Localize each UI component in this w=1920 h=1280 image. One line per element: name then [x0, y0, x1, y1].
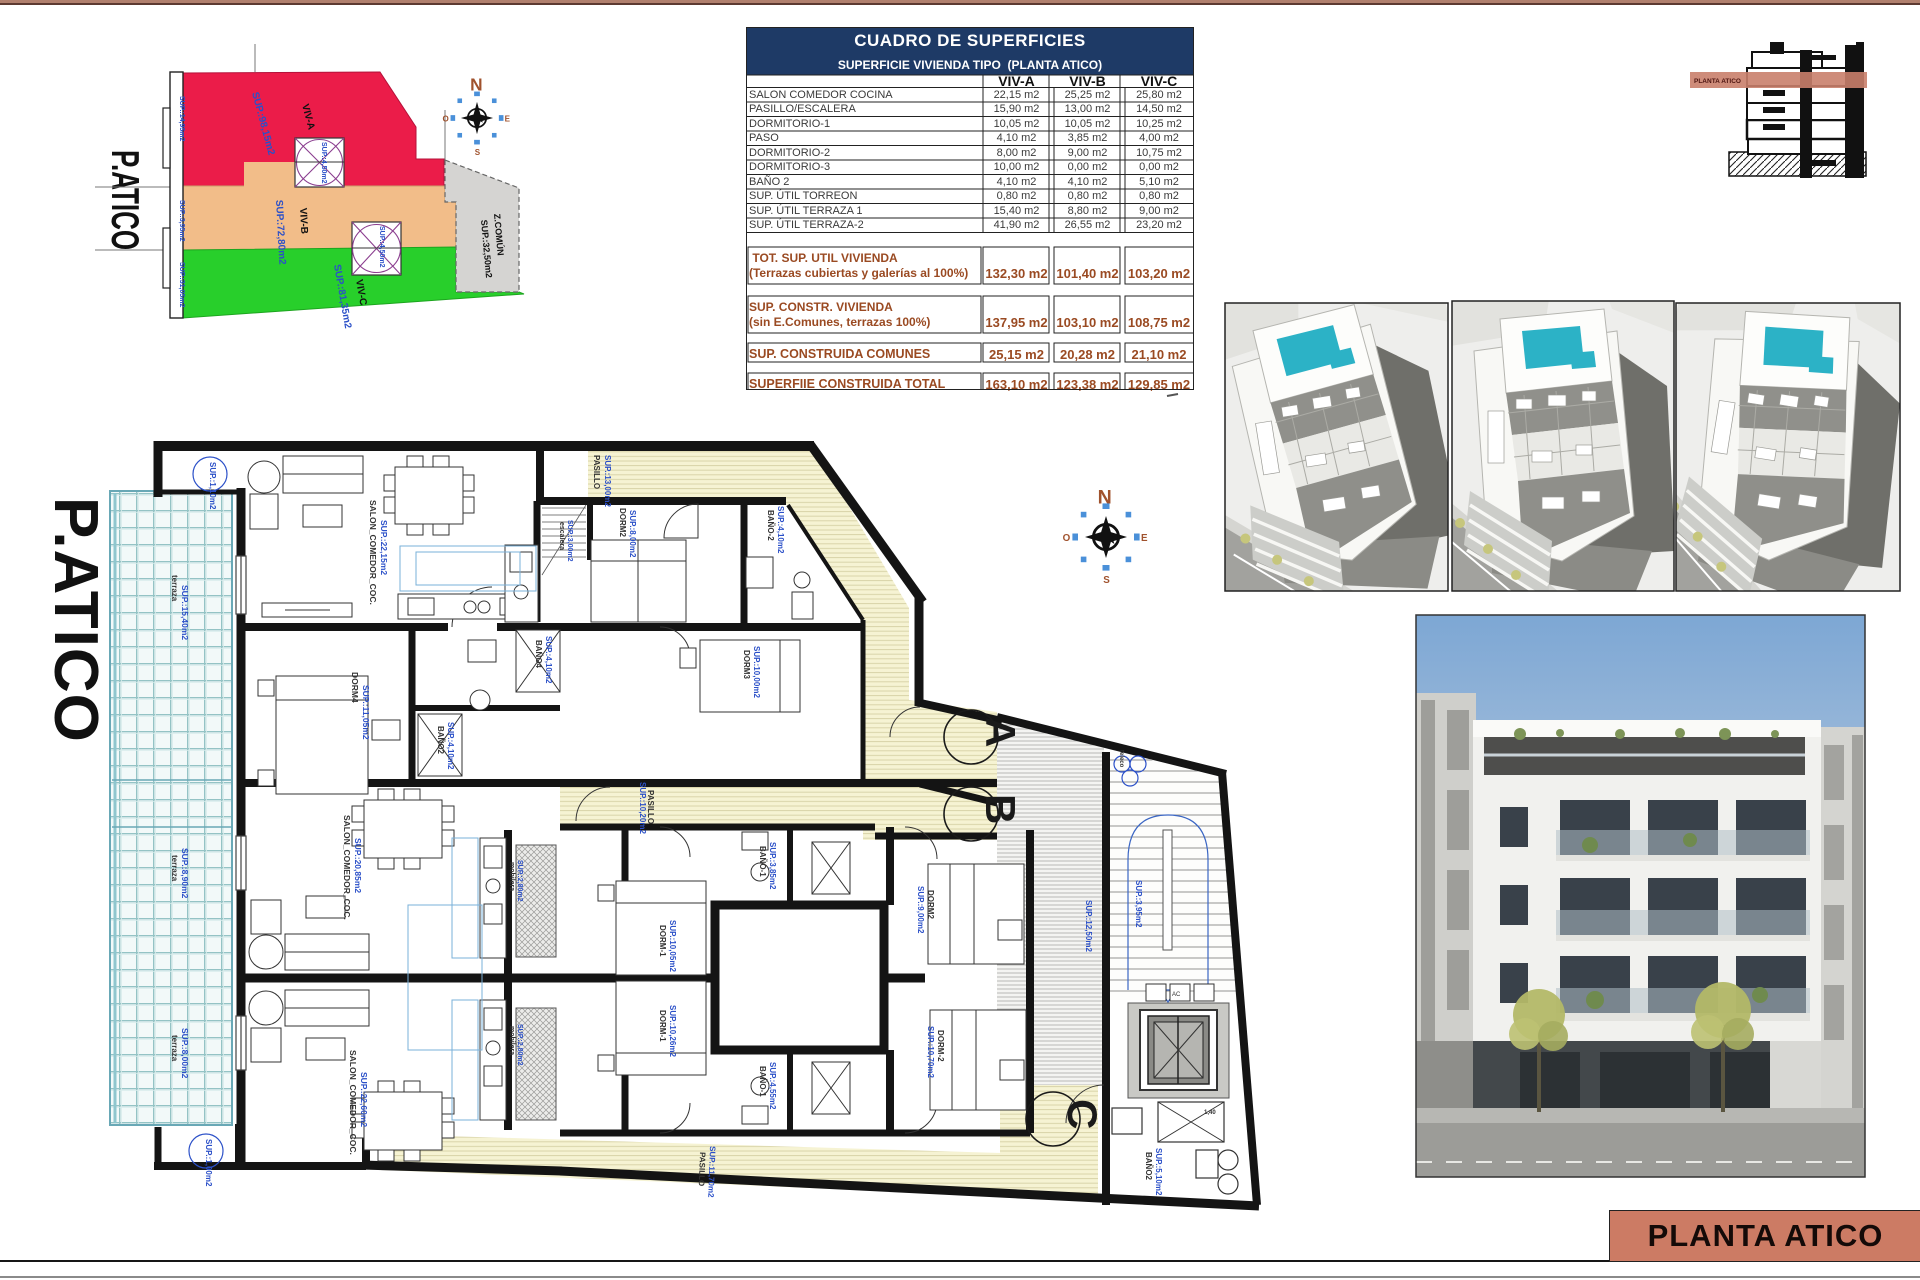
- svg-text:BAÑO4: BAÑO4: [534, 640, 543, 669]
- svg-text:SUP.:10,00m2: SUP.:10,00m2: [752, 646, 761, 698]
- svg-text:PASILLO: PASILLO: [592, 455, 601, 489]
- svg-text:SUP.:3,85m2: SUP.:3,85m2: [768, 842, 777, 890]
- svg-text:SUP.:8,00m2: SUP.:8,00m2: [628, 510, 637, 558]
- svg-text:SUP.:10,26m2: SUP.:10,26m2: [668, 1005, 677, 1057]
- svg-text:SUP.:3,95m2: SUP.:3,95m2: [178, 200, 185, 242]
- svg-text:SUP.:20,85m2: SUP.:20,85m2: [353, 838, 363, 893]
- svg-text:SALON_COMEDOR_COC.: SALON_COMEDOR_COC.: [368, 500, 378, 605]
- svg-text:SUP.:8,00m2: SUP.:8,00m2: [180, 1028, 190, 1079]
- svg-text:DORM-2: DORM-2: [936, 1030, 945, 1062]
- svg-text:SUP.:31,05m2: SUP.:31,05m2: [178, 262, 185, 308]
- svg-text:SUP.:10,05m2: SUP.:10,05m2: [668, 920, 677, 972]
- svg-text:SUP.:4,50m2: SUP.:4,50m2: [320, 142, 327, 184]
- svg-text:VIV-B: VIV-B: [297, 208, 309, 235]
- svg-text:C: C: [1059, 1099, 1106, 1129]
- svg-text:DORM4: DORM4: [350, 672, 360, 703]
- svg-text:S: S: [1103, 575, 1110, 586]
- svg-text:DORM-1: DORM-1: [658, 925, 667, 957]
- svg-text:PASILLO: PASILLO: [697, 1152, 707, 1186]
- svg-text:terraza: terraza: [170, 855, 179, 882]
- svg-text:E: E: [505, 114, 511, 123]
- svg-text:PLANTA ATICO: PLANTA ATICO: [1694, 78, 1741, 85]
- svg-text:SUP.:14,95m2: SUP.:14,95m2: [178, 96, 185, 142]
- svg-text:SUP.:4,50m2: SUP.:4,50m2: [378, 226, 385, 268]
- svg-text:SUP.:22,60m2: SUP.:22,60m2: [359, 1072, 369, 1127]
- svg-text:SUP.:22,15m2: SUP.:22,15m2: [379, 520, 389, 575]
- svg-text:DORM2: DORM2: [618, 508, 627, 537]
- svg-text:teleco: teleco: [1118, 750, 1124, 768]
- svg-text:A: A: [977, 717, 1024, 747]
- svg-text:N: N: [470, 74, 482, 94]
- svg-text:BAÑO-1: BAÑO-1: [758, 846, 767, 877]
- svg-text:SUP.:10,20m2: SUP.:10,20m2: [638, 782, 647, 834]
- svg-text:BAÑO-1: BAÑO-1: [758, 1066, 767, 1097]
- svg-text:SUP.:2,80m2: SUP.:2,80m2: [516, 1024, 523, 1066]
- svg-text:BAÑO2: BAÑO2: [436, 726, 445, 755]
- svg-text:SALON_COMEDOR_COC.: SALON_COMEDOR_COC.: [348, 1050, 358, 1155]
- svg-text:SUP.:4,10m2: SUP.:4,10m2: [544, 636, 553, 684]
- svg-text:SUP.:2,80m2: SUP.:2,80m2: [516, 860, 523, 902]
- svg-text:O: O: [443, 114, 449, 123]
- svg-text:SUP.:4,10m2: SUP.:4,10m2: [446, 722, 455, 770]
- svg-text:P.ATICO: P.ATICO: [41, 497, 110, 743]
- svg-text:O: O: [1063, 533, 1071, 544]
- svg-text:SUP.:3,95m2: SUP.:3,95m2: [1134, 880, 1143, 928]
- svg-text:SALON_COMEDOR_COC.: SALON_COMEDOR_COC.: [342, 815, 352, 920]
- svg-text:SUP.:3,00m2: SUP.:3,00m2: [566, 520, 573, 562]
- svg-text:terraza: terraza: [170, 1035, 179, 1062]
- svg-text:1,40: 1,40: [1204, 1110, 1216, 1116]
- svg-text:DORM-1: DORM-1: [658, 1010, 667, 1042]
- svg-text:SUP.:15,40m2: SUP.:15,40m2: [180, 585, 190, 640]
- svg-text:terraza: terraza: [170, 575, 179, 602]
- svg-text:SUP.:11,05m2: SUP.:11,05m2: [361, 685, 371, 740]
- svg-text:SUP.:4,10m2: SUP.:4,10m2: [776, 506, 785, 554]
- svg-text:SUP.:13,00m2: SUP.:13,00m2: [603, 455, 612, 507]
- svg-text:SUP.:1,00m2: SUP.:1,00m2: [204, 1139, 213, 1187]
- svg-text:SUP.:11,70m2: SUP.:11,70m2: [706, 1146, 717, 1198]
- svg-text:SUP.:12,50m2: SUP.:12,50m2: [1084, 900, 1093, 952]
- svg-text:BAÑO-2: BAÑO-2: [766, 510, 775, 541]
- svg-text:SUP.:4,55m2: SUP.:4,55m2: [768, 1062, 777, 1110]
- svg-text:B: B: [977, 794, 1024, 824]
- svg-text:SUP.:8,90m2: SUP.:8,90m2: [180, 848, 190, 899]
- svg-text:DORM2: DORM2: [926, 890, 935, 919]
- svg-text:SUP.:9,00m2: SUP.:9,00m2: [916, 886, 925, 934]
- svg-text:E: E: [1141, 533, 1148, 544]
- svg-text:escalera: escalera: [558, 522, 565, 550]
- svg-text:AC: AC: [1172, 992, 1181, 998]
- svg-text:S: S: [475, 148, 481, 157]
- svg-text:SUP.:10,70m2: SUP.:10,70m2: [926, 1026, 935, 1078]
- svg-text:SUP.:5,10m2: SUP.:5,10m2: [1154, 1148, 1163, 1196]
- svg-text:P.ATICO: P.ATICO: [103, 150, 147, 250]
- svg-text:mobilera: mobilera: [508, 862, 515, 891]
- svg-text:SUP.:1,10m2: SUP.:1,10m2: [208, 462, 217, 510]
- svg-text:BAÑO2: BAÑO2: [1144, 1152, 1153, 1181]
- svg-text:DORM3: DORM3: [742, 650, 751, 679]
- svg-text:mobilera: mobilera: [508, 1026, 515, 1055]
